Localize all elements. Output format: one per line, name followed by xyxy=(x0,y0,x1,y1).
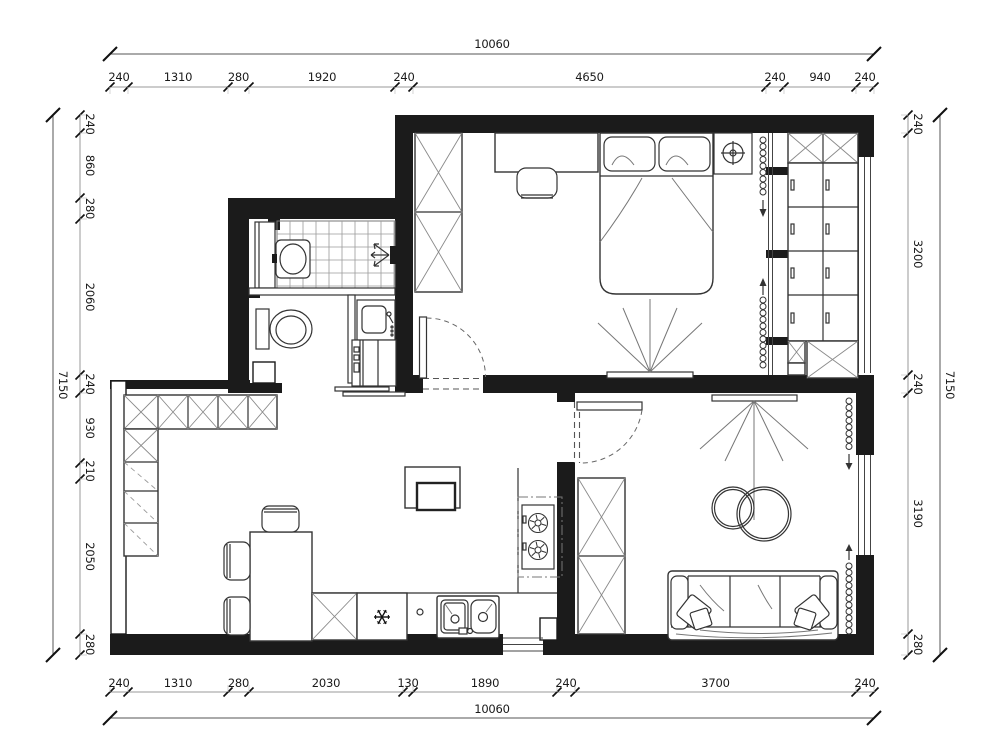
dimension-label: 240 xyxy=(764,70,785,84)
dimension-label: 240 xyxy=(854,70,875,84)
vanity-sink-icon xyxy=(357,300,395,340)
dimension-label: 240 xyxy=(911,373,925,394)
base-cabinet-icon xyxy=(312,593,357,640)
sofa-icon xyxy=(668,571,838,640)
cabinet-top xyxy=(788,133,858,163)
desk-chair-icon xyxy=(517,168,557,198)
toilet-icon xyxy=(256,309,312,349)
floor-plan-page: 24013102801920240465024094024010060 2401… xyxy=(0,0,1000,753)
refrigerator-icon xyxy=(357,593,407,640)
shelf-unit xyxy=(788,163,858,341)
dimension-label: 280 xyxy=(83,198,97,219)
dimension-label: 930 xyxy=(83,417,97,438)
dimension-label: 1310 xyxy=(164,70,192,84)
dimension-label: 7150 xyxy=(943,371,957,399)
dimension-label: 280 xyxy=(228,70,249,84)
dimension-label: 10060 xyxy=(474,37,510,51)
dimension-label: 3200 xyxy=(911,240,925,268)
dimension-label: 240 xyxy=(108,676,129,690)
dining-chair-icon xyxy=(262,506,299,532)
nightstand-lamp-icon xyxy=(714,133,752,174)
dimension-label: 240 xyxy=(393,70,414,84)
desk-icon xyxy=(495,133,598,172)
dimension-label: 240 xyxy=(83,373,97,394)
dimension-label: 240 xyxy=(911,113,925,134)
glass-partition xyxy=(249,288,395,295)
dimension-label: 130 xyxy=(397,676,418,690)
dimension-label: 1890 xyxy=(471,676,499,690)
dimension-label: 10060 xyxy=(474,702,510,716)
wash-basin-icon xyxy=(276,240,310,278)
dimension-label: 240 xyxy=(83,113,97,134)
dimension-label: 3190 xyxy=(911,499,925,527)
dimension-label: 940 xyxy=(809,70,830,84)
dining-chair-icon xyxy=(224,597,250,635)
dimension-label: 1920 xyxy=(308,70,336,84)
wall-niche xyxy=(253,362,275,383)
dimension-label: 240 xyxy=(108,70,129,84)
dimension-label: 7150 xyxy=(56,371,70,399)
dimension-label: 240 xyxy=(555,676,576,690)
dimension-label: 3700 xyxy=(701,676,729,690)
dimension-label: 2030 xyxy=(312,676,340,690)
double-sink-icon xyxy=(437,596,499,638)
dimension-label: 210 xyxy=(83,460,97,481)
dimension-label: 2060 xyxy=(83,283,97,311)
double-bed-icon xyxy=(600,133,713,294)
wall-stub xyxy=(540,618,557,640)
wall-cabinet-icon xyxy=(405,467,460,510)
wardrobe-icon xyxy=(415,133,462,292)
cabinet-bottom xyxy=(788,341,858,378)
dimension-label: 2050 xyxy=(83,542,97,570)
dimension-label: 280 xyxy=(228,676,249,690)
dimension-label: 860 xyxy=(83,155,97,176)
floor-plan-canvas: 24013102801920240465024094024010060 2401… xyxy=(0,0,1000,753)
dimension-label: 1310 xyxy=(164,676,192,690)
dimension-label: 280 xyxy=(911,634,925,655)
dining-table-icon xyxy=(250,532,312,641)
dimension-label: 280 xyxy=(83,634,97,655)
tall-cabinet-icon xyxy=(578,478,625,634)
storage-closet xyxy=(788,133,858,378)
dimension-label: 240 xyxy=(854,676,875,690)
dining-chair-icon xyxy=(224,542,250,580)
dimension-label: 4650 xyxy=(575,70,603,84)
